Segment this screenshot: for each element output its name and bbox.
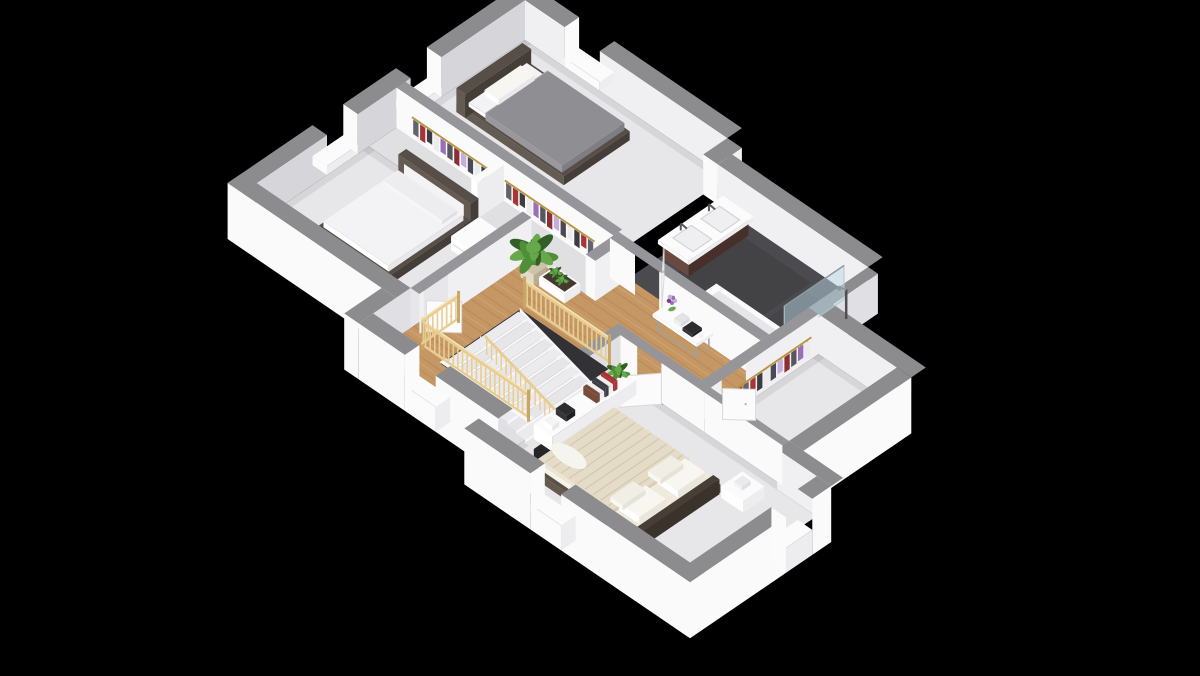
- door-leaf: [723, 389, 756, 421]
- floorplan-3d-render: [0, 0, 1200, 676]
- floorplan-render-stage: [0, 0, 1200, 676]
